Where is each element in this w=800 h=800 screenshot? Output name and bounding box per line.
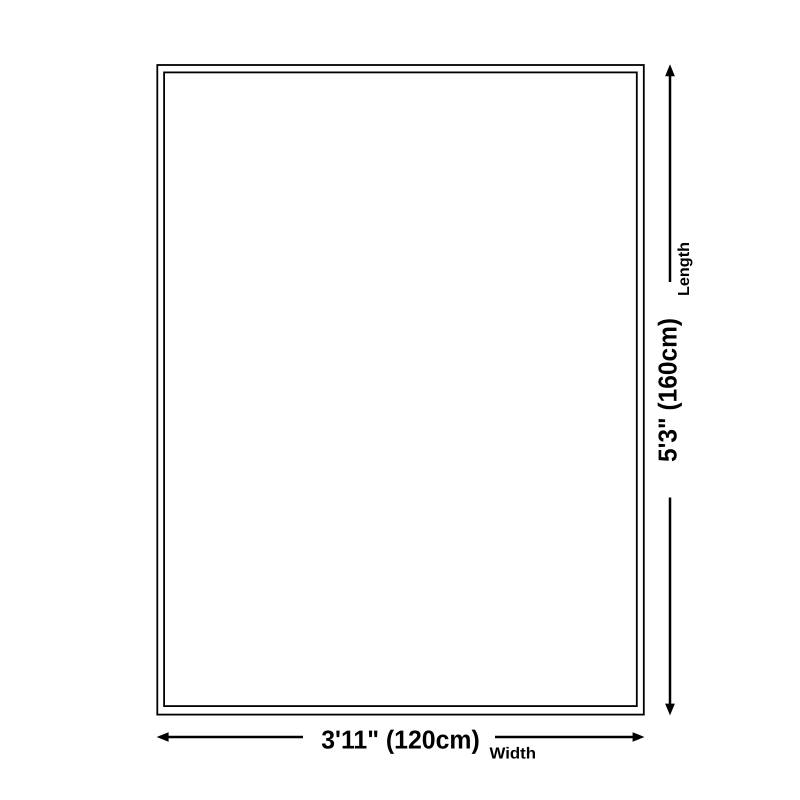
svg-text:5'3" (160cm): 5'3" (160cm) [653, 318, 683, 462]
svg-text:3'11" (120cm): 3'11" (120cm) [321, 725, 480, 755]
svg-text:Width: Width [490, 746, 537, 763]
svg-text:Length: Length [676, 242, 693, 296]
